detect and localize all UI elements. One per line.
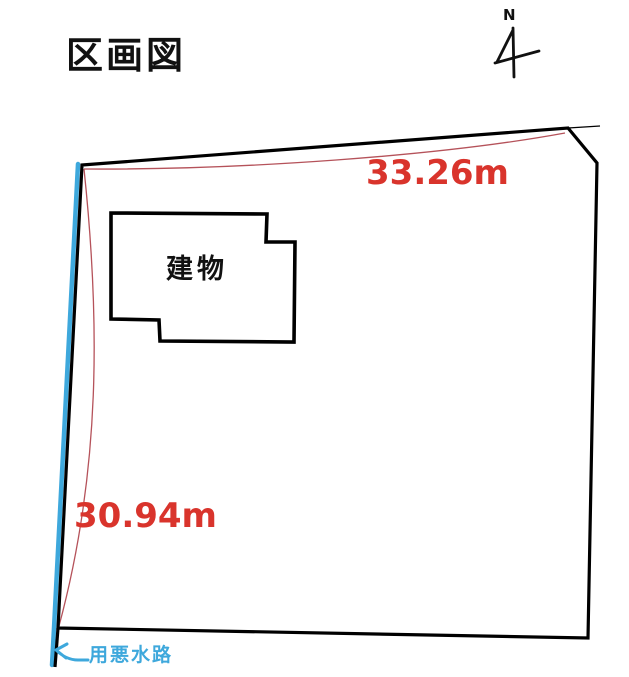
parcel-outline [58,128,597,638]
measurement-top-edge: 33.26m [366,156,509,190]
parcel-map: 区画図 N 33.26m 30.94m 建物 用悪水路 [0,0,629,677]
page-title: 区画図 [66,37,186,74]
waterway-callout-arrow-icon [56,644,88,660]
waterway-label: 用悪水路 [89,646,173,665]
north-label: N [503,8,516,23]
parcel-drawing [0,0,629,677]
boundary-tail-top-right [568,126,600,128]
building-label: 建物 [166,256,228,283]
measurement-left-edge: 30.94m [74,499,217,533]
north-arrow-icon [495,28,539,77]
waterway-line [52,164,78,665]
